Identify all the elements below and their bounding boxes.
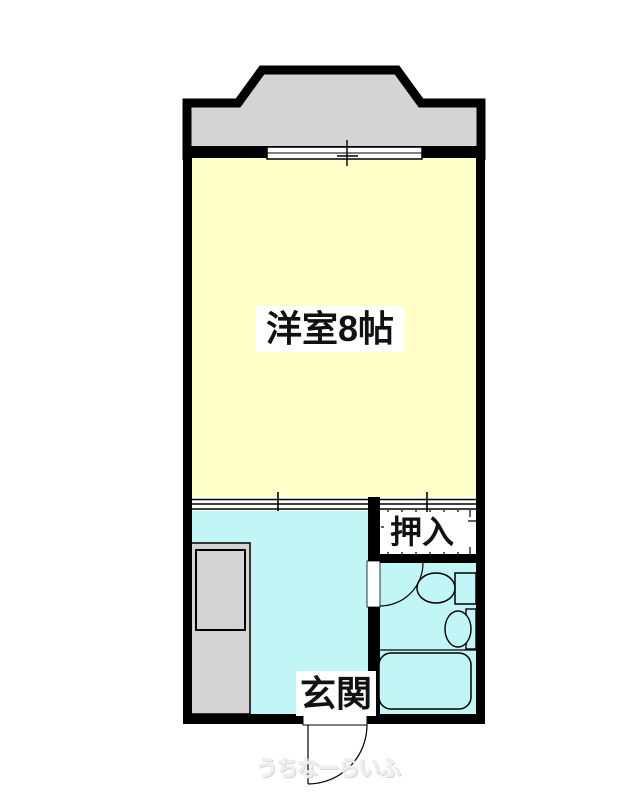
- kitchen-sink: [196, 550, 245, 630]
- kitchen-counter: [191, 543, 250, 714]
- entrance-label: 玄関: [296, 671, 376, 716]
- toilet: [417, 573, 476, 604]
- sink: [445, 609, 476, 649]
- wall-closet-bottom: [368, 554, 485, 563]
- bathtub: [379, 653, 471, 709]
- floorplan: 洋室8帖 押入 玄関 うちなーらいふ: [0, 0, 638, 800]
- closet-label: 押入: [384, 512, 460, 552]
- wall-left: [183, 146, 192, 724]
- wall-right: [476, 146, 485, 724]
- watermark: うちなーらいふ: [256, 751, 396, 783]
- main-room-label: 洋室8帖: [256, 306, 404, 352]
